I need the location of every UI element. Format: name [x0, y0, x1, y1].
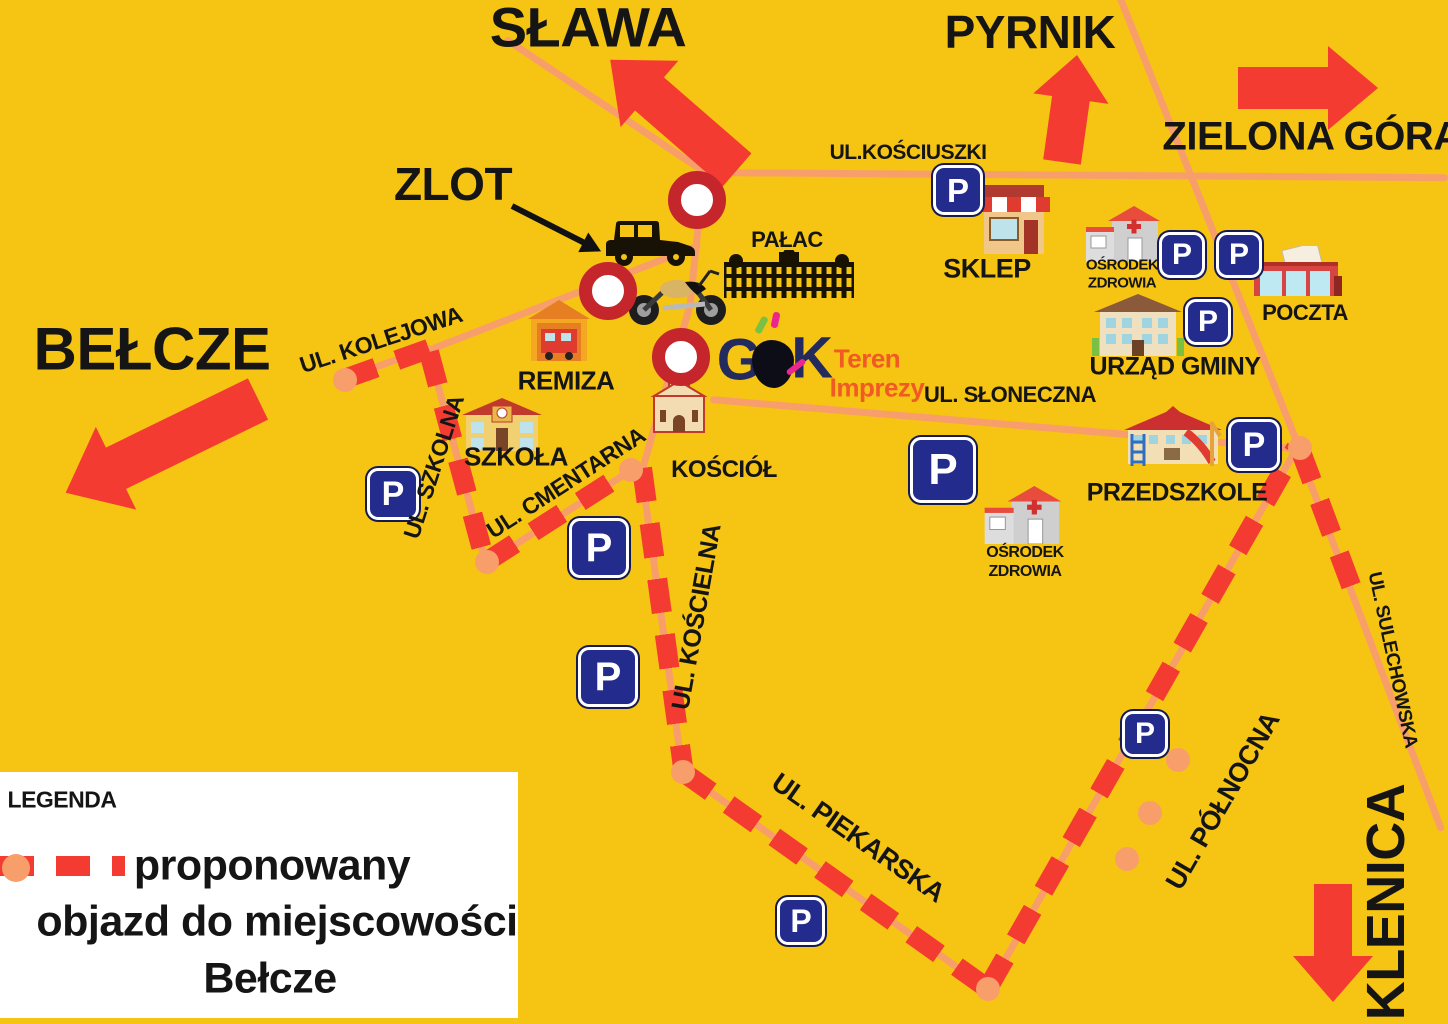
detour-map: G K Teren Imprezy P P P P P P P P P P P …	[0, 0, 1448, 1024]
parking-sign: P	[569, 518, 629, 578]
route-junction-dot	[976, 977, 1000, 1001]
legend-panel: LEGENDA proponowany objazd do miejscowoś…	[0, 772, 518, 1018]
place-osrodek-zdrowia-line1: OŚRODEK	[1086, 257, 1158, 274]
arrow-shaft	[1043, 94, 1090, 165]
street-ul-polnocna: UL. PÓŁNOCNA	[1160, 707, 1287, 895]
arrow-shaft	[511, 203, 587, 246]
sklep-icon	[978, 185, 1050, 259]
parking-letter: P	[1243, 428, 1266, 462]
motorcycle-icon	[625, 262, 730, 328]
street-ul-koscielna: UL. KOŚCIELNA	[666, 522, 727, 712]
gok-imprezy-label: Imprezy	[830, 373, 925, 404]
place-osrodek-zdrowia-line2: ZDROWIA	[1088, 275, 1156, 292]
poczta-icon	[1252, 246, 1342, 298]
arrow-shaft	[1314, 884, 1352, 958]
legend-text-line1: proponowany	[134, 842, 410, 891]
legend-route-dot	[2, 854, 30, 882]
destination-klenica: KLENICA	[1355, 784, 1417, 1021]
urzad-gminy-icon	[1092, 292, 1184, 360]
parking-sign: P	[910, 437, 976, 503]
parking-letter: P	[790, 905, 811, 937]
legend-title: LEGENDA	[8, 787, 117, 814]
destination-slawa: SŁAWA	[490, 0, 687, 60]
parking-sign: P	[1228, 419, 1280, 471]
osrodek-zdrowia-icon	[1086, 206, 1162, 262]
gok-paint-splash-green	[754, 315, 769, 334]
parking-sign: P	[777, 897, 825, 945]
arrow-shaft	[1238, 67, 1330, 109]
route-junction-dot	[1166, 748, 1190, 772]
place-urzad-gminy: URZĄD GMINY	[1090, 353, 1261, 382]
legend-text-line2: objazd do miejscowości	[36, 898, 517, 947]
parking-sign: P	[1216, 232, 1262, 278]
route-junction-dot	[1288, 436, 1312, 460]
gok-paint-splash-pink	[770, 311, 780, 328]
parking-sign: P	[1122, 711, 1168, 757]
place-poczta: POCZTA	[1262, 300, 1348, 326]
place-palac: PAŁAC	[751, 227, 823, 253]
parking-letter: P	[1135, 719, 1155, 749]
no-entry-sign-icon	[579, 262, 637, 320]
parking-letter: P	[382, 477, 405, 511]
street-ul-kosciuszki: UL.KOŚCIUSZKI	[830, 141, 987, 165]
place-szkola: SZKOŁA	[464, 442, 568, 473]
route-junction-dot	[333, 368, 357, 392]
route-junction-dot	[475, 550, 499, 574]
place-przedszkole: PRZEDSZKOLE	[1087, 479, 1268, 508]
destination-belcze: BEŁCZE	[34, 315, 271, 384]
route-junction-dot	[671, 760, 695, 784]
gok-teren-label: Teren	[834, 344, 900, 375]
road-ul-kosciuszki	[700, 169, 1448, 181]
no-entry-sign-icon	[652, 328, 710, 386]
zlot-label: ZLOT	[394, 157, 512, 211]
arrow-belcze	[66, 399, 258, 493]
route-junction-dot	[1138, 801, 1162, 825]
osrodek-zdrowia-icon	[980, 486, 1068, 544]
arrow-pyrnik	[1062, 55, 1077, 162]
parking-letter: P	[1172, 240, 1192, 270]
destination-zielona-gora: ZIELONA GÓRA	[1162, 115, 1448, 160]
arrow-shaft	[104, 378, 268, 489]
parking-sign: P	[933, 165, 983, 215]
gok-letter-k: K	[791, 325, 832, 392]
place-sklep: SKLEP	[943, 254, 1031, 285]
palac-icon	[724, 250, 854, 298]
place-osrodek-zdrowia-2-line2: ZDROWIA	[989, 563, 1062, 581]
parking-letter: P	[595, 657, 622, 697]
route-junction-dot	[1115, 847, 1139, 871]
detour-segment-sulechowska	[1291, 445, 1362, 593]
place-kosciol: KOŚCIÓŁ	[671, 456, 777, 484]
parking-sign: P	[578, 647, 638, 707]
parking-letter: P	[586, 528, 613, 568]
place-remiza: REMIZA	[518, 366, 615, 397]
legend-text-line3: Bełcze	[203, 955, 336, 1004]
street-ul-sulechowska: UL. SULECHOWSKA	[1363, 570, 1422, 750]
remiza-icon	[528, 300, 590, 366]
parking-letter: P	[928, 448, 957, 492]
destination-pyrnik: PYRNIK	[945, 5, 1116, 59]
parking-sign: P	[1159, 232, 1205, 278]
no-entry-sign-icon	[668, 171, 726, 229]
parking-sign: P	[1185, 299, 1231, 345]
street-ul-sloneczna: UL. SŁONECZNA	[924, 382, 1096, 408]
parking-letter: P	[1229, 240, 1249, 270]
zlot-pointer-arrow	[512, 206, 601, 251]
przedszkole-icon	[1124, 404, 1222, 476]
place-osrodek-zdrowia-2-line1: OŚRODEK	[986, 544, 1063, 562]
parking-letter: P	[1198, 307, 1218, 337]
parking-letter: P	[947, 174, 969, 207]
